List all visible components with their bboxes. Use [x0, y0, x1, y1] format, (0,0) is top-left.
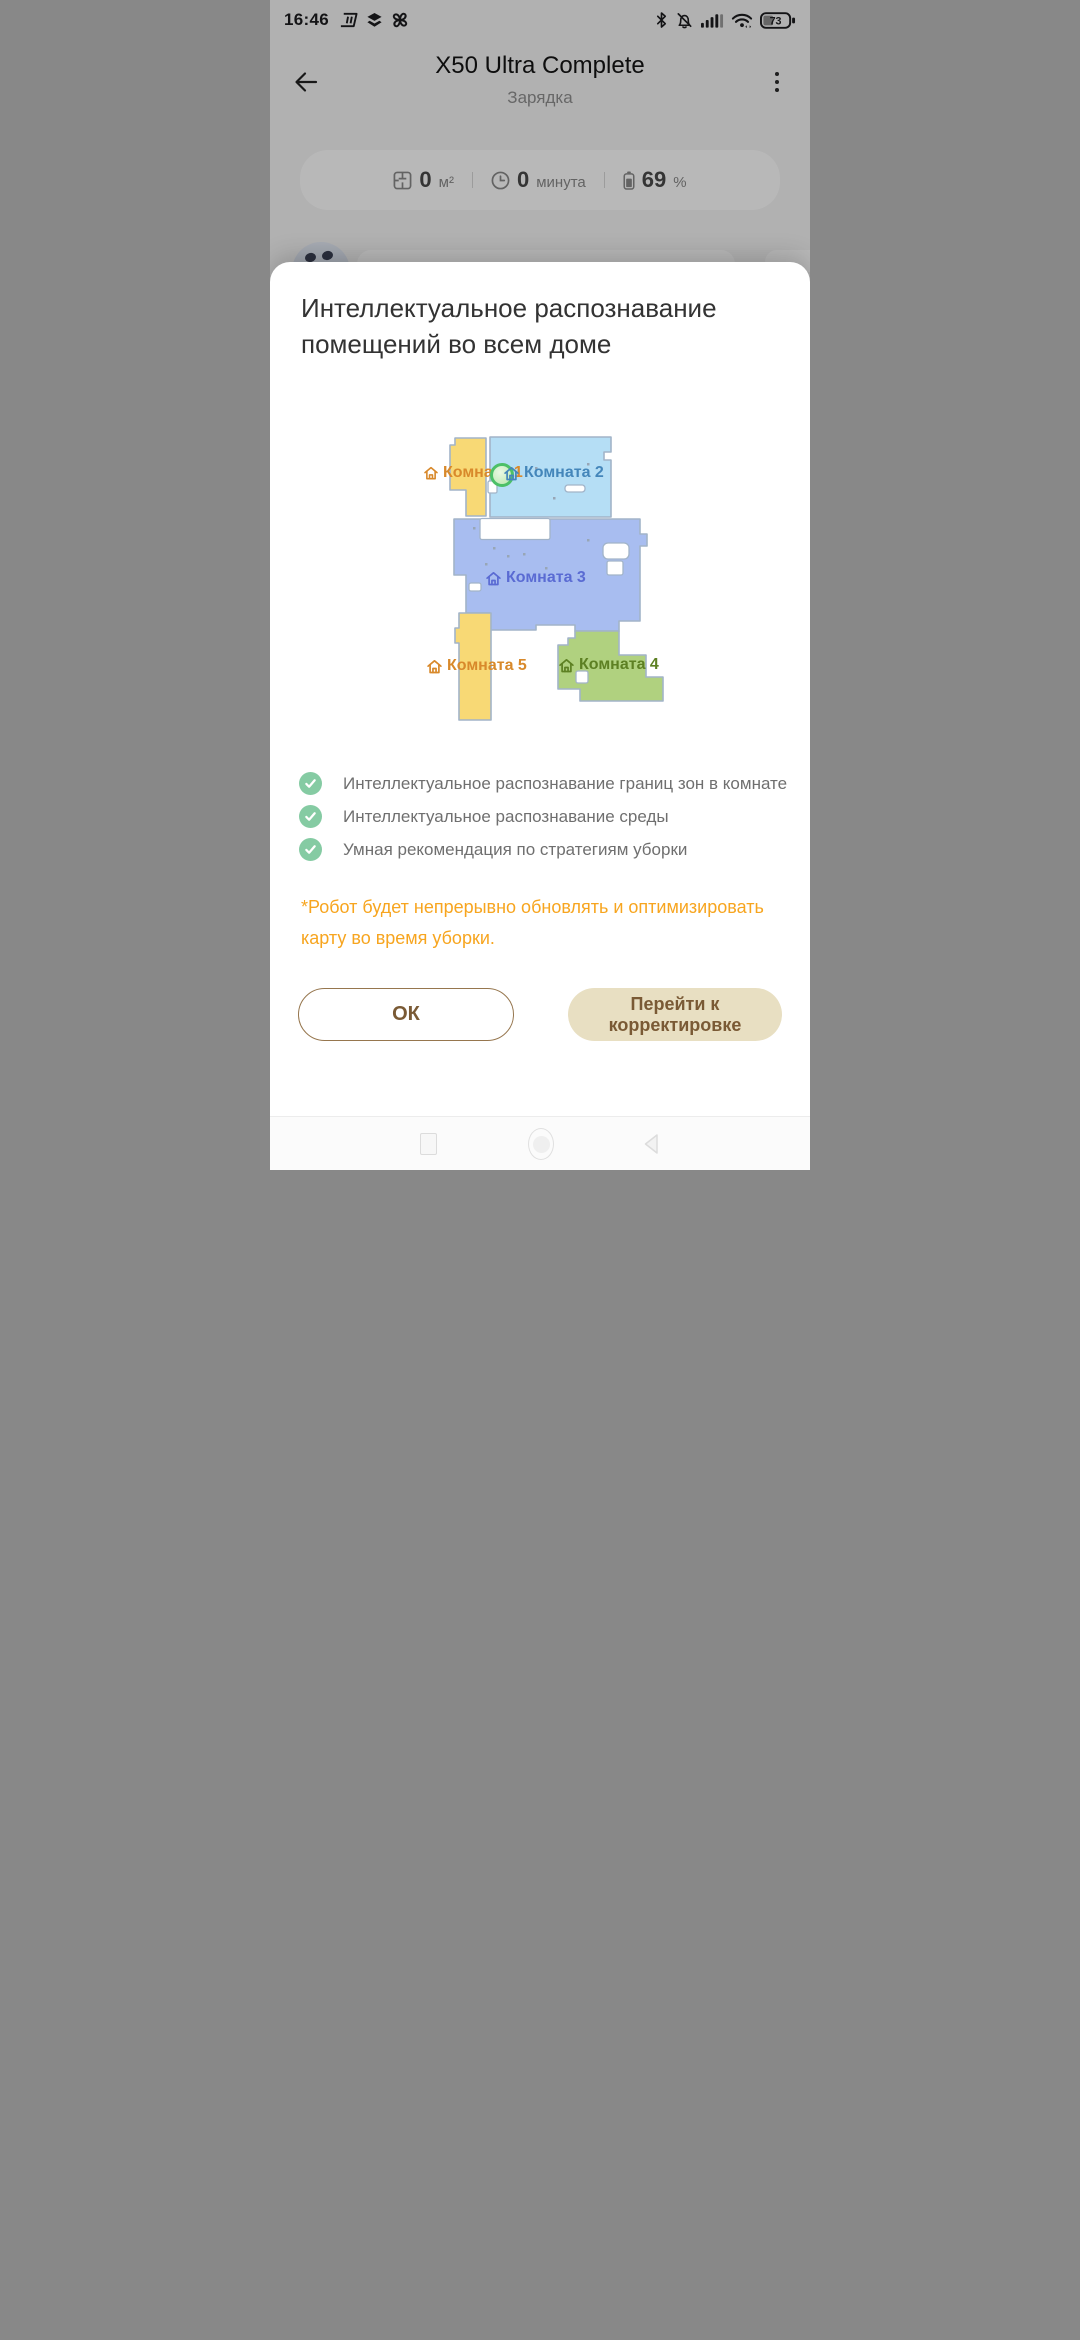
update-note: *Робот будет непрерывно обновлять и опти…	[301, 892, 773, 954]
house-icon	[423, 465, 439, 481]
home-circle-icon	[528, 1128, 554, 1160]
check-icon	[299, 772, 322, 795]
feature-item: Интеллектуальное распознавание границ зо…	[299, 772, 787, 795]
phone-screen: 16:46	[270, 0, 810, 1170]
house-icon	[558, 657, 575, 674]
sheet-title: Интеллектуальное распознавание помещений…	[301, 290, 781, 362]
back-triangle-icon	[642, 1133, 660, 1155]
check-icon	[299, 838, 322, 861]
house-icon	[485, 570, 502, 587]
feature-text: Интеллектуальное распознавание границ зо…	[343, 774, 787, 794]
android-nav-bar	[270, 1116, 810, 1170]
room-2-label: Комната 2	[503, 464, 604, 482]
map-recognition-sheet: Интеллектуальное распознавание помещений…	[270, 262, 810, 1170]
nav-back-button[interactable]	[621, 1117, 681, 1170]
house-map: Комната 1 Комната 2 Комната 3 Комнат	[435, 435, 675, 735]
room-5-label: Комната 5	[426, 657, 527, 675]
feature-list: Интеллектуальное распознавание границ зо…	[299, 772, 787, 861]
go-to-adjustment-button[interactable]: Перейти к корректировке	[568, 988, 782, 1041]
house-icon	[426, 658, 443, 675]
feature-text: Интеллектуальное распознавание среды	[343, 807, 669, 827]
room-4-label: Комната 4	[558, 656, 659, 674]
recents-square-icon	[420, 1133, 437, 1155]
house-icon	[503, 465, 520, 482]
home-button[interactable]	[511, 1117, 571, 1170]
check-icon	[299, 805, 322, 828]
recents-button[interactable]	[398, 1117, 458, 1170]
ok-button[interactable]: ОК	[298, 988, 514, 1041]
feature-item: Умная рекомендация по стратегиям уборки	[299, 838, 787, 861]
room-3-label: Комната 3	[485, 569, 586, 587]
feature-text: Умная рекомендация по стратегиям уборки	[343, 840, 687, 860]
feature-item: Интеллектуальное распознавание среды	[299, 805, 787, 828]
